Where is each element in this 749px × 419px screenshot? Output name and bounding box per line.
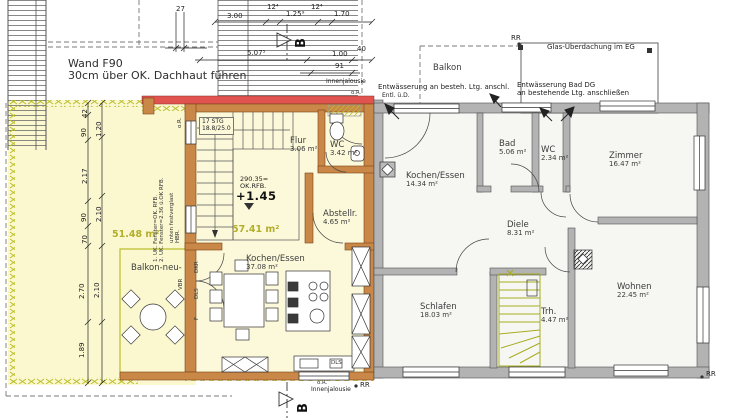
room-label-zimmer: Zimmer16.47 m² [609, 152, 642, 169]
room-label-wc-old: WC2.34 m² [541, 146, 568, 163]
dim-90b: 90 [81, 213, 89, 222]
note-vbr: VBR [178, 279, 184, 290]
note-dkr: DKR [194, 261, 200, 273]
dim-3-00: 3.00 [227, 13, 243, 21]
dim-1-20: 1.20 [96, 121, 104, 137]
note-or-top: o.R. [351, 90, 361, 96]
note-or-wall: o.R. [177, 118, 183, 128]
staircase-trh [499, 270, 540, 366]
dim-12a: 12⁴ [267, 4, 279, 12]
room-label-wohnen: Wohnen22.45 m² [617, 283, 652, 300]
windows [186, 101, 709, 380]
dim-90a: 90 [81, 128, 89, 137]
dim-27: 27 [176, 6, 185, 14]
dim-1-70: 1.70 [334, 11, 350, 19]
rr-label-top: RR [511, 35, 521, 43]
room-label-diele: Diele8.31 m² [507, 221, 534, 238]
note-entw-right: Entwässerung Bad DGan bestehende Ltg. an… [517, 82, 629, 97]
note-entw-left: Entwässerung an besteh. Ltg. anschl. [378, 84, 509, 92]
room-label-kochen-new: Kochen/Essen37.08 m² [246, 255, 305, 272]
dim-1-25: 1.25⁹ [286, 11, 304, 19]
dim-1-89: 1.89 [79, 342, 87, 358]
floor-plan: Wand F9030cm über OK. Dachhaut führen Ba… [0, 0, 749, 419]
note-innenjalousie-top: Innenjalousie [326, 79, 366, 86]
section-letter-top: B [295, 38, 309, 48]
room-label-balkon: Balkon [433, 64, 462, 73]
dim-40: 40 [357, 46, 366, 54]
area-new-flat: 57.41 m² [232, 225, 279, 235]
dim-12b: 12⁴ [311, 4, 323, 12]
room-label-schlafen: Schlafen18.03 m² [420, 303, 457, 320]
dim-42: 42 [82, 109, 90, 118]
note-entl: Entl. ü.D. [382, 93, 410, 100]
room-label-abstellraum: Abstellr.4.65 m² [323, 210, 357, 227]
walls-old-building [374, 100, 709, 378]
note-festverglast: unten festverglastHBR. [169, 193, 181, 243]
section-letter-bottom: B [297, 403, 311, 413]
room-label-kochen-old: Kochen/Essen14.34 m² [406, 172, 465, 189]
dim-1-00: 1.00 [332, 51, 348, 59]
note-innenjalousie-bottom: Innenjalousie [311, 387, 351, 394]
room-label-balkon-neu: Balkon-neu- [131, 264, 182, 273]
level-value: +1.45 [236, 190, 277, 203]
balcony-furniture [122, 290, 184, 344]
note-window-heights: 1. UK. Fenster=OK. RFB.2. UK. Fenster=2.… [153, 177, 165, 262]
rr-label-bottom-center: RR [360, 382, 370, 390]
dim-91: 91 [335, 63, 344, 71]
room-label-flur: Flur3.06 m² [290, 137, 317, 154]
stair-label: 17 STG18.8/25.0 [199, 117, 234, 135]
firewall-f90 [142, 96, 374, 104]
room-label-bad: Bad5.06 m² [499, 140, 526, 157]
note-dls-bottom: DLS [331, 360, 342, 366]
dim-2-10a: 2.10 [96, 206, 104, 222]
note-wand-f90: Wand F9030cm über OK. Dachhaut führen [68, 58, 246, 82]
room-label-trh: Trh.4.47 m² [541, 308, 568, 325]
note-f: F [194, 317, 200, 320]
dim-2-70: 2.70 [79, 283, 87, 299]
rr-label-bottom-right: RR [706, 371, 716, 379]
note-glas: Glas-Überdachung im EG [547, 44, 635, 52]
dim-5-07: 5.07⁵ [247, 50, 265, 58]
room-label-wc-new: WC3.42 m² [330, 141, 357, 158]
dim-2-10b: 2.10 [94, 282, 102, 298]
note-dls: DLS [194, 288, 200, 299]
dim-2-17: 2.17 [82, 168, 90, 184]
dim-70: 70 [82, 235, 90, 244]
